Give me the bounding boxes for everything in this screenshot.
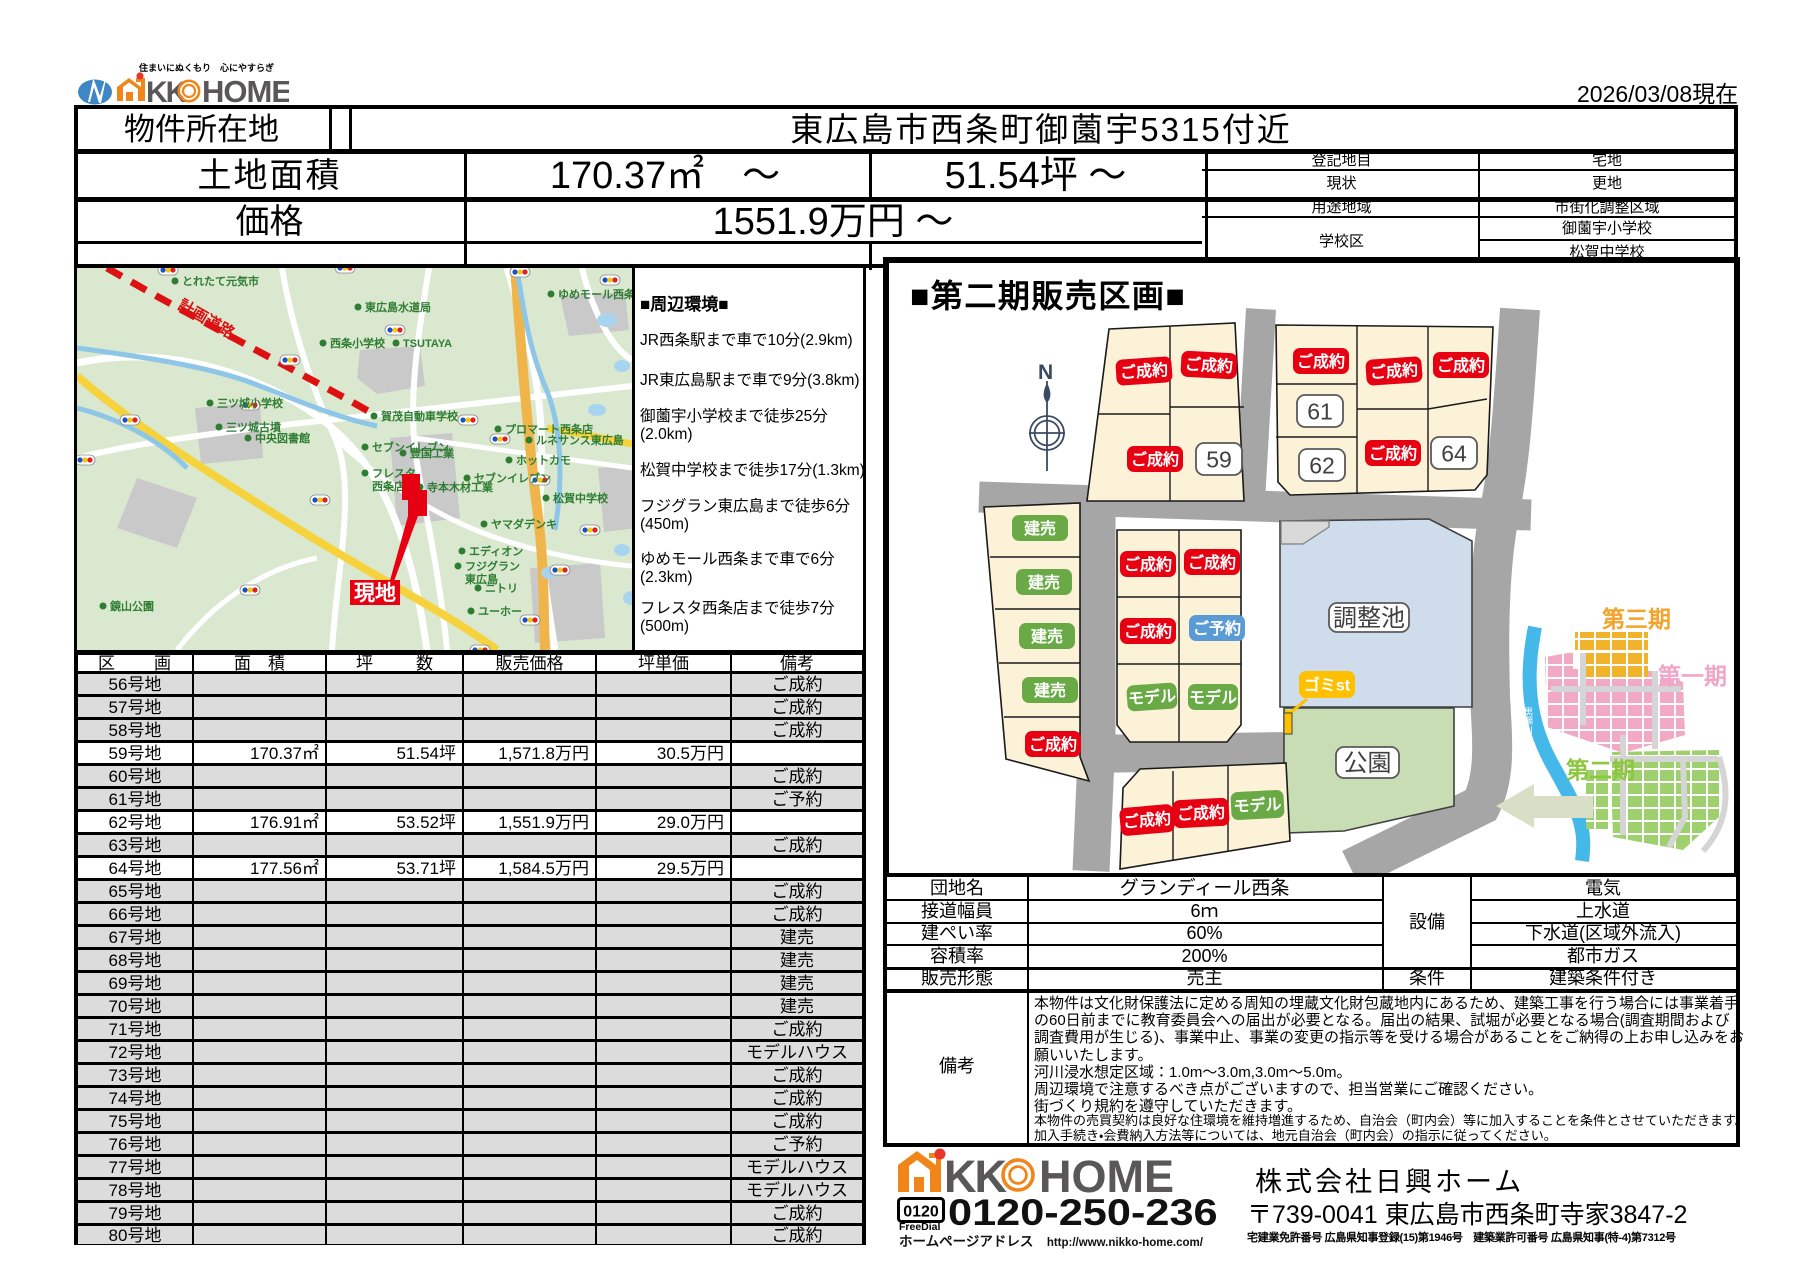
svg-text:ご予約: ご予約 [1193, 619, 1241, 638]
svg-text:61: 61 [1307, 398, 1333, 424]
svg-text:三ツ城小学校: 三ツ城小学校 [217, 396, 284, 410]
svg-text:建売: 建売 [1023, 519, 1056, 538]
svg-text:62: 62 [1309, 452, 1335, 478]
svg-text:ヤマダデンキ: ヤマダデンキ [491, 517, 557, 531]
svg-text:西条店: 西条店 [372, 479, 405, 493]
svg-text:プロマート西条店: プロマート西条店 [505, 422, 593, 436]
svg-text:調整池: 調整池 [1333, 605, 1405, 632]
svg-text:とれたて元気市: とれたて元気市 [182, 274, 259, 288]
svg-text:賀茂自動車学校: 賀茂自動車学校 [380, 409, 459, 423]
svg-text:公園: 公園 [1344, 750, 1392, 777]
svg-text:ご成約: ご成約 [1185, 355, 1234, 376]
svg-text:KK: KK [944, 1151, 1007, 1198]
svg-text:豊国工業: 豊国工業 [410, 446, 455, 460]
svg-text:建売: 建売 [1030, 627, 1063, 646]
svg-text:ご成約: ご成約 [1188, 553, 1236, 572]
svg-text:鏡山公園: 鏡山公園 [109, 599, 154, 613]
svg-text:東広島: 東広島 [465, 572, 498, 586]
svg-text:ご成約: ご成約 [1177, 803, 1226, 824]
svg-text:セブンイレブン: セブンイレブン [474, 471, 551, 485]
svg-text:ご成約: ご成約 [1029, 735, 1077, 754]
svg-text:ご成約: ご成約 [1124, 622, 1172, 641]
svg-text:モデル: モデル [1233, 795, 1282, 816]
svg-text:ご成約: ご成約 [1437, 356, 1485, 375]
svg-text:ご成約: ご成約 [1131, 450, 1179, 469]
svg-text:TSUTAYA: TSUTAYA [403, 338, 452, 350]
svg-text:ルネサンス東広島: ルネサンス東広島 [536, 433, 624, 447]
svg-text:ご成約: ご成約 [1369, 444, 1417, 463]
svg-text:中央図書館: 中央図書館 [255, 431, 310, 445]
svg-text:ご成約: ご成約 [1124, 555, 1172, 574]
svg-text:■第二期販売区画■: ■第二期販売区画■ [910, 278, 1186, 314]
svg-text:64: 64 [1441, 440, 1467, 466]
svg-text:N: N [1038, 361, 1053, 384]
svg-text:HOME: HOME [1039, 1151, 1174, 1198]
svg-text:建売: 建売 [1027, 573, 1060, 592]
svg-text:第二期: 第二期 [1566, 757, 1635, 783]
svg-text:西条小学校: 西条小学校 [330, 336, 386, 350]
svg-text:0120: 0120 [903, 1204, 939, 1221]
svg-text:黒瀬川: 黒瀬川 [1523, 707, 1533, 734]
svg-text:モデル: モデル [1189, 688, 1237, 707]
svg-text:エディオン: エディオン [469, 544, 523, 558]
svg-text:59: 59 [1206, 446, 1232, 472]
svg-text:ゆめモール西条: ゆめモール西条 [558, 287, 632, 301]
svg-text:ホットカモ: ホットカモ [516, 454, 571, 467]
svg-text:第三期: 第三期 [1602, 606, 1671, 632]
svg-text:第一期: 第一期 [1658, 663, 1727, 689]
svg-text:HOME: HOME [202, 74, 289, 109]
svg-text:ゴミst: ゴミst [1304, 675, 1351, 694]
svg-text:東広島水道局: 東広島水道局 [365, 300, 431, 314]
svg-text:建売: 建売 [1033, 681, 1066, 700]
svg-text:現地: 現地 [354, 581, 396, 605]
svg-text:松賀中学校: 松賀中学校 [553, 491, 609, 505]
svg-text:フジグラン: フジグラン [465, 559, 520, 573]
svg-text:ご成約: ご成約 [1297, 352, 1345, 371]
svg-text:三ツ城古墳: 三ツ城古墳 [226, 420, 281, 434]
svg-text:ユーホー: ユーホー [478, 605, 522, 618]
